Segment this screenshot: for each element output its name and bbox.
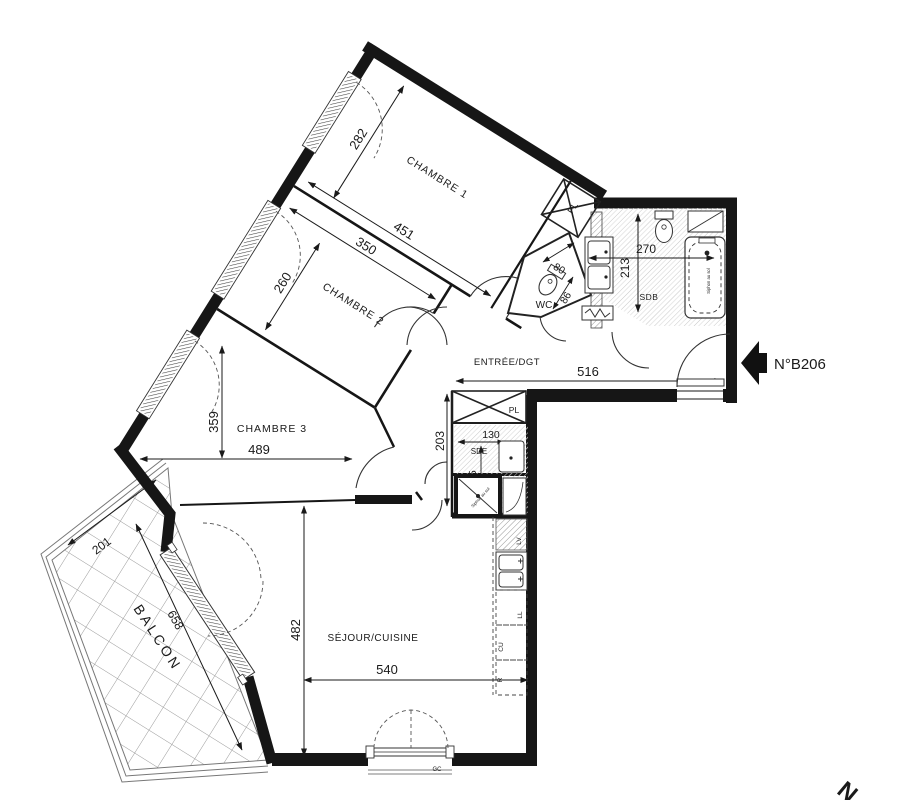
compass-north-label: N (832, 776, 863, 800)
sdb-radiator-icon (582, 306, 613, 320)
window-chambre3 (136, 330, 199, 419)
bathtub-siphon-label: Siphon au sol (706, 268, 711, 293)
sdb-room: Siphon au sol SDB 270 213 (582, 208, 726, 368)
balcony-floor (52, 468, 268, 770)
dim-sejour-depth: 482 (288, 619, 303, 641)
floor-plan-b206: 201 658 BALCON (0, 0, 899, 800)
dim-entree-width: 516 (577, 364, 599, 379)
dim-ch1-depth: 282 (346, 126, 370, 152)
dim-sdb-depth: 213 (618, 258, 632, 278)
balcony: 201 658 BALCON (41, 459, 268, 782)
door-arc-wc (540, 316, 566, 341)
wall-wing-top (365, 46, 604, 195)
wing-windows (136, 72, 361, 419)
window-gc-label: GC (433, 767, 443, 773)
kitchen-sink-icon (496, 552, 527, 590)
closet-pl-hall-label: PL (565, 201, 579, 216)
dim-hall-depth: 203 (433, 431, 447, 451)
entry-door-leaf (677, 379, 724, 386)
room-label-chambre2: CHAMBRE 2 (320, 281, 386, 328)
door-arc-sde (425, 462, 447, 484)
sdb-shelf-icon (688, 211, 723, 232)
room-label-entree: ENTRÉE/DGT (474, 357, 540, 368)
dim-line-350 (290, 208, 436, 299)
kitchen-label-ll: LL (517, 611, 524, 619)
sde-basin-icon (499, 441, 524, 472)
dim-ch3-width: 489 (248, 442, 270, 457)
room-label-chambre1: CHAMBRE 1 (404, 154, 470, 201)
kitchen-strip: LV LL CU R (493, 517, 527, 695)
door-arc-sejour (412, 500, 442, 530)
dim-ch2-depth: 260 (270, 269, 294, 295)
entry-threshold (677, 391, 723, 399)
entree: ENTRÉE/DGT 516 N°B206 (456, 334, 826, 387)
sdb-vanity-icon (585, 237, 613, 293)
door-arc-sdb (612, 332, 649, 368)
kitchen-label-lv: LV (516, 537, 523, 545)
wall-ch2-right (375, 285, 451, 407)
kitchen-label-cu: CU (498, 642, 505, 652)
sdb-bathtub-icon (685, 237, 725, 318)
french-window: GC (366, 710, 454, 774)
dim-sde-width: 130 (482, 429, 500, 441)
room-label-wc: WC (536, 300, 553, 311)
pl-lower-label: PL (509, 405, 520, 415)
room-label-sdb: SDB (640, 292, 659, 302)
entrance-arrow-icon (741, 341, 767, 385)
room-label-sde: SDE (471, 447, 487, 456)
floor-plan-page: 201 658 BALCON (0, 0, 899, 800)
wall-sejour-top-thin (180, 500, 355, 505)
room-label-sejour: SÉJOUR/CUISINE (328, 631, 419, 644)
dim-ch1-width: 451 (391, 219, 417, 243)
dim-sejour-width: 540 (376, 662, 398, 677)
dim-ch3-depth: 359 (206, 411, 221, 433)
wall-ch3-hall (375, 408, 422, 500)
room-label-chambre3: CHAMBRE 3 (237, 423, 307, 435)
door-arc-chambre3 (356, 447, 394, 488)
wall-ch2-ch3 (217, 309, 375, 408)
dim-sdb-width: 270 (636, 242, 656, 256)
sdb-toilet-icon (655, 211, 673, 243)
unit-number-label: N°B206 (774, 356, 826, 373)
window-chambre2 (211, 200, 280, 299)
wc-room: WC 80 86 (508, 233, 591, 341)
